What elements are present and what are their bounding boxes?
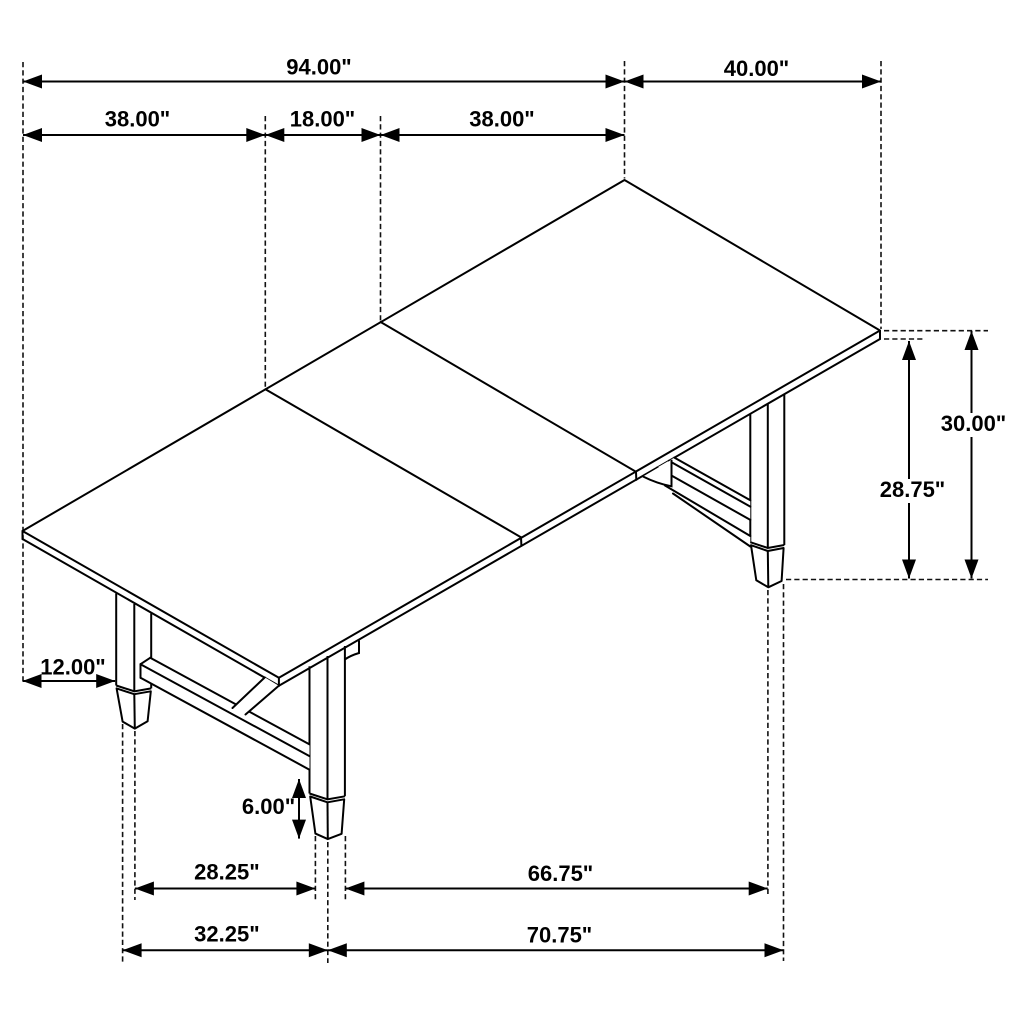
svg-text:6.00": 6.00" <box>242 794 295 819</box>
svg-text:94.00": 94.00" <box>286 55 351 80</box>
svg-text:38.00": 38.00" <box>105 107 170 132</box>
svg-text:38.00": 38.00" <box>469 107 534 132</box>
svg-text:28.25": 28.25" <box>194 860 259 885</box>
svg-text:32.25": 32.25" <box>194 922 259 947</box>
svg-text:18.00": 18.00" <box>290 107 355 132</box>
svg-text:40.00": 40.00" <box>724 56 789 81</box>
svg-text:70.75": 70.75" <box>527 923 592 948</box>
svg-text:30.00": 30.00" <box>941 411 1006 436</box>
svg-text:28.75": 28.75" <box>880 477 945 502</box>
svg-text:66.75": 66.75" <box>528 861 593 886</box>
svg-text:12.00": 12.00" <box>40 655 105 680</box>
